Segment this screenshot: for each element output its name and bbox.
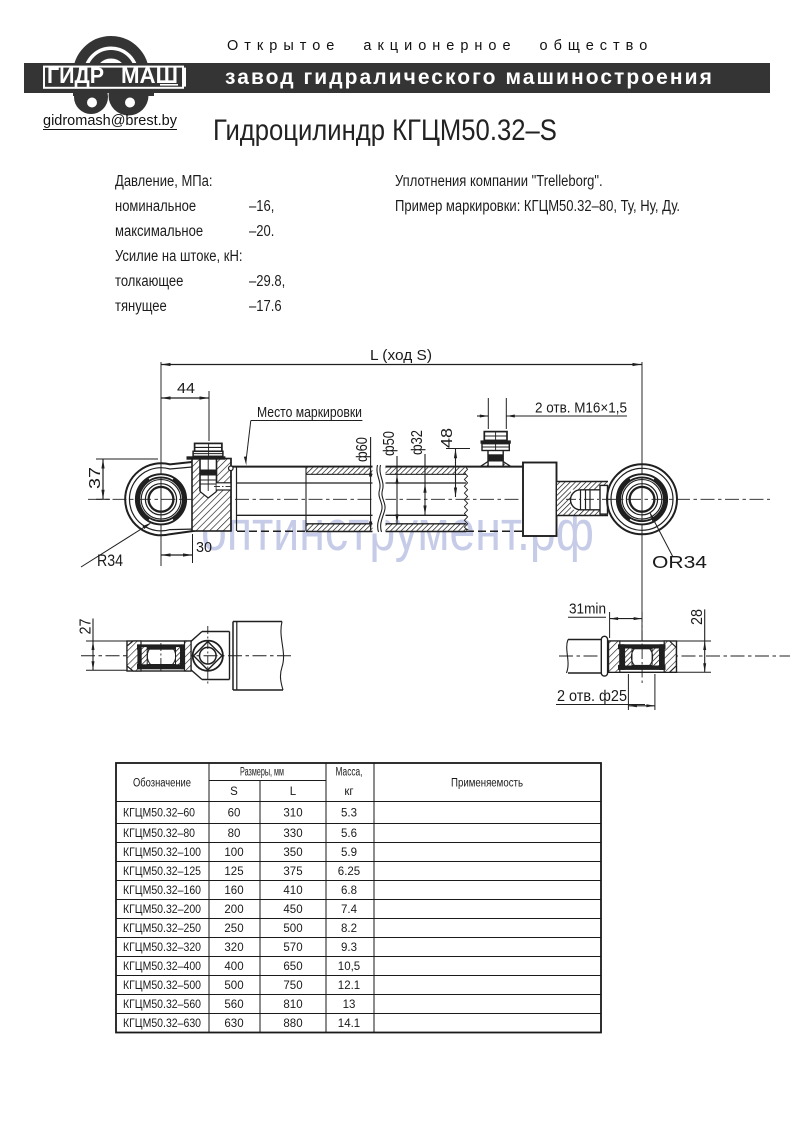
- svg-text:Место маркировки: Место маркировки: [257, 405, 362, 421]
- svg-text:8.2: 8.2: [341, 923, 357, 935]
- svg-text:330: 330: [283, 828, 302, 840]
- svg-text:КГЦМ50.32–250: КГЦМ50.32–250: [123, 923, 201, 935]
- svg-text:810: 810: [283, 999, 302, 1011]
- svg-text:КГЦМ50.32–500: КГЦМ50.32–500: [123, 980, 201, 992]
- svg-text:2 отв. ф25: 2 отв. ф25: [557, 688, 627, 705]
- svg-text:125: 125: [224, 866, 243, 878]
- svg-text:500: 500: [224, 980, 243, 992]
- svg-text:КГЦМ50.32–630: КГЦМ50.32–630: [123, 1018, 201, 1030]
- svg-text:48: 48: [439, 428, 456, 448]
- svg-text:9.3: 9.3: [341, 942, 357, 954]
- svg-text:КГЦМ50.32–560: КГЦМ50.32–560: [123, 999, 201, 1011]
- svg-text:650: 650: [283, 961, 302, 973]
- svg-text:37: 37: [87, 467, 104, 489]
- svg-text:31min: 31min: [569, 601, 606, 618]
- svg-text:R34: R34: [97, 551, 123, 570]
- svg-text:160: 160: [224, 885, 243, 897]
- svg-text:КГЦМ50.32–400: КГЦМ50.32–400: [123, 961, 201, 973]
- svg-text:410: 410: [283, 885, 302, 897]
- svg-text:14.1: 14.1: [338, 1018, 360, 1030]
- svg-text:450: 450: [283, 904, 302, 916]
- svg-text:Масса,: Масса,: [336, 767, 363, 779]
- svg-text:28: 28: [689, 609, 706, 625]
- svg-text:630: 630: [224, 1018, 243, 1030]
- svg-text:Обозначение: Обозначение: [133, 778, 191, 790]
- svg-text:кг: кг: [344, 786, 353, 798]
- svg-text:750: 750: [283, 980, 302, 992]
- svg-text:375: 375: [283, 866, 302, 878]
- svg-text:310: 310: [283, 808, 302, 820]
- svg-text:400: 400: [224, 961, 243, 973]
- svg-text:L: L: [290, 786, 297, 798]
- svg-text:570: 570: [283, 942, 302, 954]
- svg-text:13: 13: [343, 999, 356, 1011]
- svg-text:OR34: OR34: [652, 552, 707, 572]
- svg-text:60: 60: [228, 808, 241, 820]
- svg-text:7.4: 7.4: [341, 904, 358, 916]
- svg-text:КГЦМ50.32–80: КГЦМ50.32–80: [123, 828, 195, 840]
- svg-text:Применяемость: Применяемость: [451, 778, 523, 790]
- svg-text:200: 200: [224, 904, 243, 916]
- svg-text:250: 250: [224, 923, 243, 935]
- svg-text:10,5: 10,5: [338, 961, 360, 973]
- svg-text:80: 80: [228, 828, 241, 840]
- svg-text:30: 30: [196, 540, 212, 556]
- svg-text:L (ход S): L (ход S): [370, 347, 432, 364]
- svg-text:5.9: 5.9: [341, 847, 357, 859]
- svg-text:КГЦМ50.32–100: КГЦМ50.32–100: [123, 847, 201, 859]
- svg-text:КГЦМ50.32–320: КГЦМ50.32–320: [123, 942, 201, 954]
- svg-text:560: 560: [224, 999, 243, 1011]
- svg-text:ф50: ф50: [381, 431, 398, 456]
- svg-text:ф60: ф60: [354, 437, 371, 462]
- svg-text:320: 320: [224, 942, 243, 954]
- svg-text:350: 350: [283, 847, 302, 859]
- svg-text:S: S: [230, 786, 238, 798]
- svg-text:500: 500: [283, 923, 302, 935]
- svg-text:КГЦМ50.32–200: КГЦМ50.32–200: [123, 904, 201, 916]
- svg-text:ф32: ф32: [409, 430, 426, 455]
- svg-text:ГИДР: ГИДР: [47, 63, 104, 88]
- svg-text:КГЦМ50.32–160: КГЦМ50.32–160: [123, 885, 201, 897]
- svg-text:5.3: 5.3: [341, 808, 357, 820]
- svg-text:Размеры, мм: Размеры, мм: [240, 767, 284, 779]
- svg-text:6.25: 6.25: [338, 866, 360, 878]
- svg-text:5.6: 5.6: [341, 828, 357, 840]
- svg-text:44: 44: [177, 381, 195, 397]
- svg-text:КГЦМ50.32–125: КГЦМ50.32–125: [123, 866, 201, 878]
- svg-text:2 отв. М16×1,5: 2 отв. М16×1,5: [535, 400, 627, 417]
- svg-text:6.8: 6.8: [341, 885, 357, 897]
- svg-text:100: 100: [224, 847, 243, 859]
- svg-text:27: 27: [78, 618, 95, 634]
- svg-text:КГЦМ50.32–60: КГЦМ50.32–60: [123, 808, 195, 820]
- svg-text:880: 880: [283, 1018, 302, 1030]
- svg-text:12.1: 12.1: [338, 980, 360, 992]
